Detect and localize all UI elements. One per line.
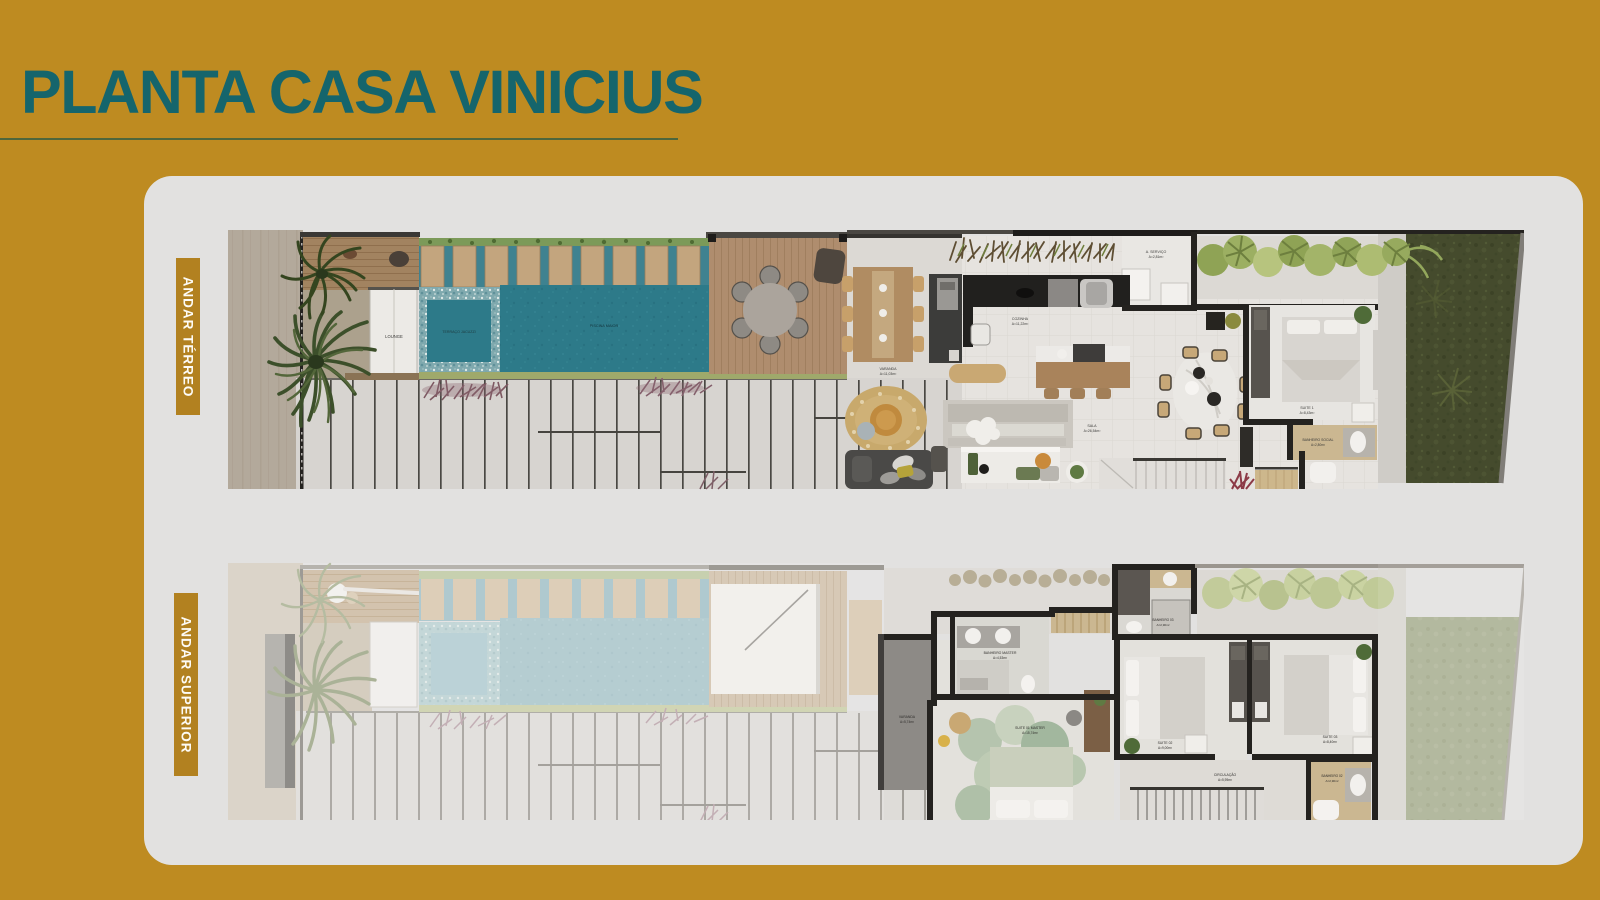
svg-text:TERRAÇO JACUZZI: TERRAÇO JACUZZI	[442, 330, 475, 334]
svg-text:BANHEIRO SOCIAL: BANHEIRO SOCIAL	[1302, 438, 1333, 442]
svg-text:BANHEIRO 02: BANHEIRO 02	[1321, 774, 1342, 778]
svg-text:A=8,40m²: A=8,40m²	[1323, 740, 1337, 744]
svg-text:A=15,74m²: A=15,74m²	[1022, 731, 1038, 735]
svg-text:VARANDA: VARANDA	[899, 715, 916, 719]
svg-text:PISCINA MAIOR: PISCINA MAIOR	[590, 324, 619, 328]
svg-text:CIRCULAÇÃO: CIRCULAÇÃO	[1214, 772, 1237, 777]
svg-text:SUITE 02: SUITE 02	[1158, 741, 1173, 745]
svg-text:SUITE 1: SUITE 1	[1300, 406, 1314, 410]
svg-text:SALA: SALA	[1087, 424, 1097, 428]
svg-text:A=8,43m²: A=8,43m²	[1300, 411, 1316, 415]
svg-text:VARANDA: VARANDA	[879, 367, 897, 371]
svg-text:A=4,53m²: A=4,53m²	[993, 656, 1007, 660]
svg-text:SUITE 01 MASTER: SUITE 01 MASTER	[1015, 726, 1045, 730]
svg-text:A=11,03m²: A=11,03m²	[880, 372, 897, 376]
svg-text:A=2,90m²: A=2,90m²	[1325, 779, 1338, 783]
svg-text:A=2,80m²: A=2,80m²	[1311, 443, 1325, 447]
svg-text:BANHEIRO 03: BANHEIRO 03	[1152, 618, 1173, 622]
svg-text:SUITE 03: SUITE 03	[1323, 735, 1338, 739]
svg-text:A=5,74m²: A=5,74m²	[900, 720, 914, 724]
svg-text:A=11,22m²: A=11,22m²	[1012, 322, 1029, 326]
svg-text:A=26,54m²: A=26,54m²	[1084, 429, 1102, 433]
svg-text:A=2,90m²: A=2,90m²	[1156, 623, 1169, 627]
svg-text:A. SERVIÇO: A. SERVIÇO	[1146, 250, 1167, 254]
svg-text:LOUNGE: LOUNGE	[385, 334, 403, 339]
svg-text:COZINHA: COZINHA	[1012, 317, 1029, 321]
svg-text:A=9,00m²: A=9,00m²	[1158, 746, 1172, 750]
svg-text:A=5,95m²: A=5,95m²	[1218, 778, 1232, 782]
svg-text:A=2,81m²: A=2,81m²	[1149, 255, 1165, 259]
svg-text:BANHEIRO MASTER: BANHEIRO MASTER	[984, 651, 1017, 655]
